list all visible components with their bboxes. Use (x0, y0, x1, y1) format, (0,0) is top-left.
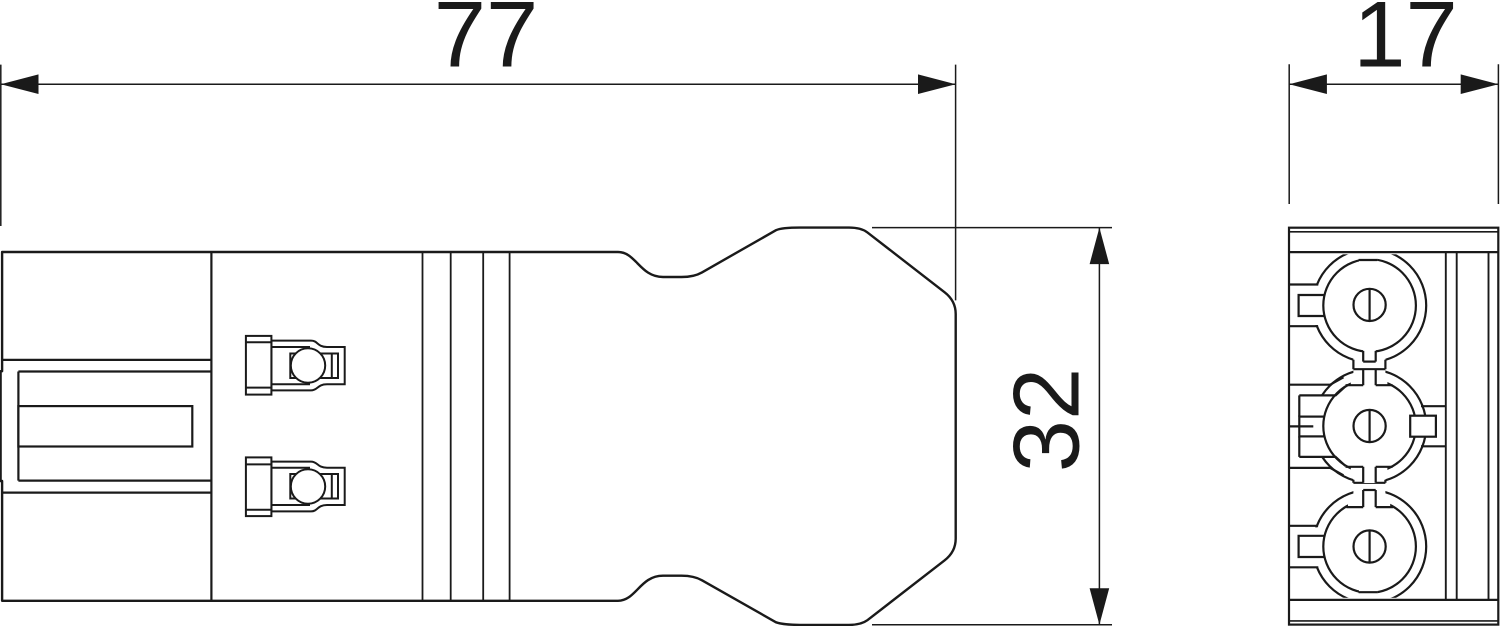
svg-text:17: 17 (1353, 0, 1458, 87)
svg-text:77: 77 (434, 0, 539, 87)
svg-text:32: 32 (994, 368, 1099, 473)
